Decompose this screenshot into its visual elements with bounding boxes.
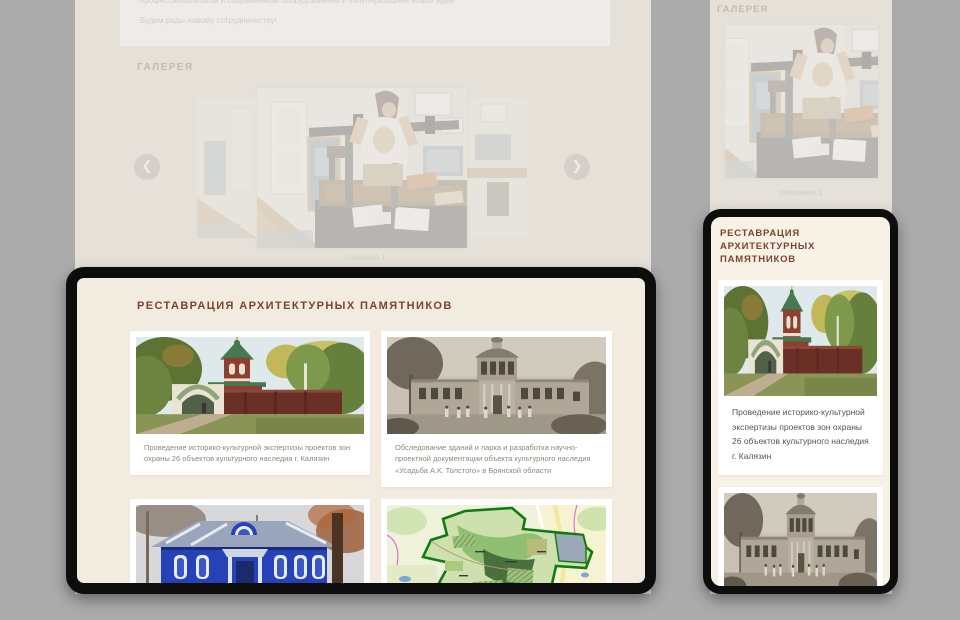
church-gate-image xyxy=(724,286,877,396)
restoration-card[interactable] xyxy=(130,499,370,594)
mobile-highlight-frame: РЕСТАВРАЦИЯ АРХИТЕКТУРНЫХ ПАМЯТНИКОВ Про… xyxy=(703,209,898,594)
church-gate-photo[interactable] xyxy=(724,286,877,396)
card-caption: Обследование зданий и парка и разработка… xyxy=(724,593,877,594)
restoration-card[interactable]: Обследование зданий и парка и разработка… xyxy=(718,487,883,594)
manor-archive-image xyxy=(724,493,877,593)
manor-archive-photo[interactable] xyxy=(724,493,877,593)
card-caption: Обследование зданий и парка и разработка… xyxy=(387,434,606,487)
card-caption: Проведение историко-культурной экспертиз… xyxy=(136,434,364,475)
manor-archive-photo[interactable] xyxy=(387,337,606,434)
restoration-heading: РЕСТАВРАЦИЯ АРХИТЕКТУРНЫХ ПАМЯТНИКОВ xyxy=(720,228,875,266)
restoration-card[interactable]: Обследование зданий и парка и разработка… xyxy=(381,331,612,487)
land-use-map-photo[interactable] xyxy=(387,505,606,594)
restoration-card[interactable]: Проведение историко-культурной экспертиз… xyxy=(718,280,883,475)
card-caption: Проведение историко-культурной экспертиз… xyxy=(724,396,877,475)
blue-house-winter-photo[interactable] xyxy=(136,505,364,594)
land-use-map-image xyxy=(387,505,606,594)
restoration-card[interactable] xyxy=(381,499,612,594)
restoration-grid-row-2 xyxy=(130,499,645,594)
church-gate-photo[interactable] xyxy=(136,337,364,434)
desktop-highlight-frame: РЕСТАВРАЦИЯ АРХИТЕКТУРНЫХ ПАМЯТНИКОВ Про… xyxy=(66,267,656,594)
blue-house-image xyxy=(136,505,364,594)
restoration-grid-row-1: Проведение историко-культурной экспертиз… xyxy=(130,331,645,487)
church-gate-image xyxy=(136,337,364,434)
manor-archive-image xyxy=(387,337,606,434)
restoration-card[interactable]: Проведение историко-культурной экспертиз… xyxy=(130,331,370,475)
restoration-heading: РЕСТАВРАЦИЯ АРХИТЕКТУРНЫХ ПАМЯТНИКОВ xyxy=(137,299,645,314)
